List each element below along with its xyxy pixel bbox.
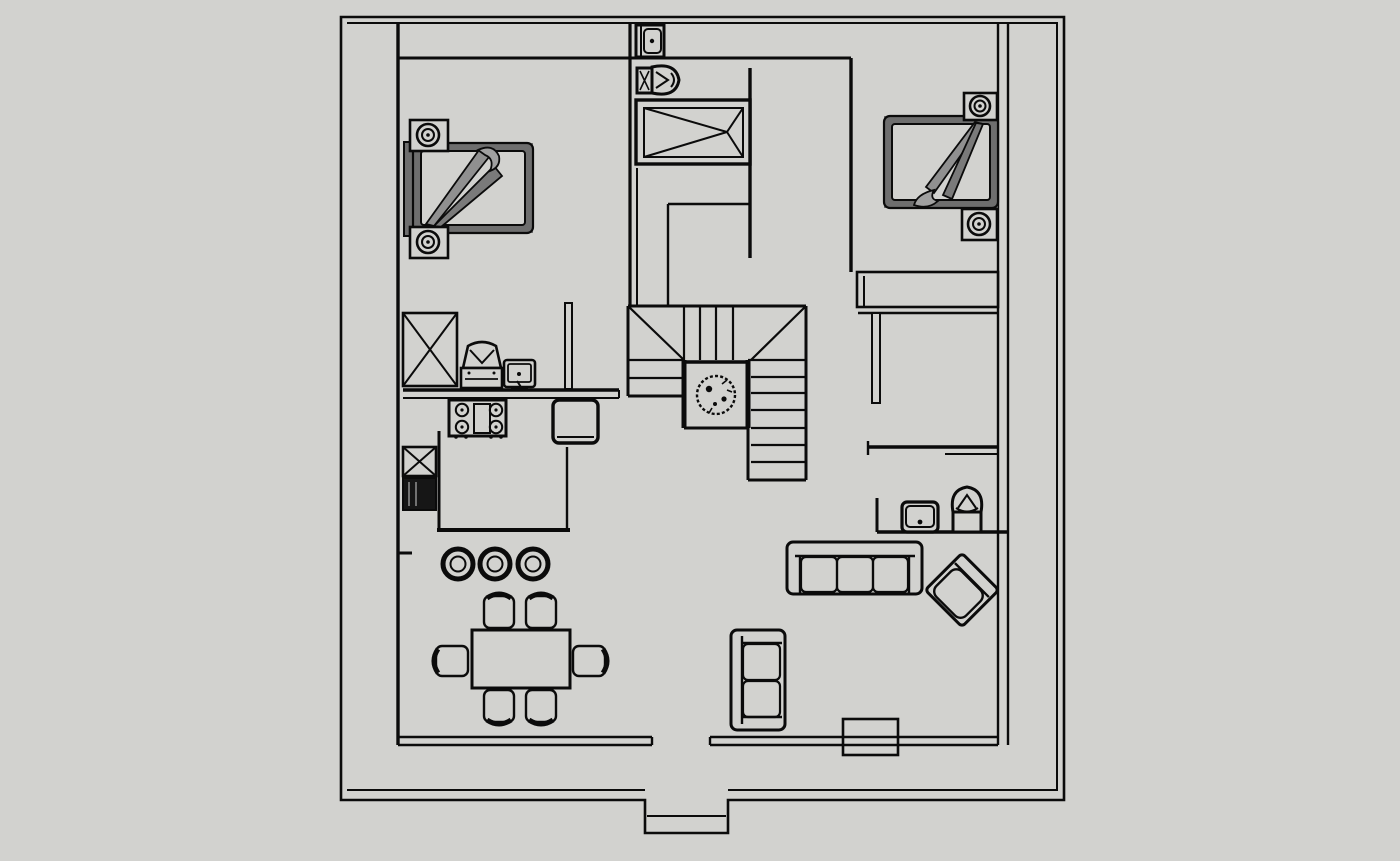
- bathroom-sink[interactable]: [636, 25, 664, 57]
- bar-stool[interactable]: [443, 549, 473, 579]
- wardrobe[interactable]: [857, 272, 998, 307]
- bed-left[interactable]: [404, 142, 533, 236]
- nightstand-lamp[interactable]: [964, 93, 997, 120]
- refrigerator[interactable]: [403, 447, 436, 510]
- sofa-three-seat[interactable]: [787, 542, 922, 594]
- dining-chair[interactable]: [484, 690, 514, 724]
- coffee-machine[interactable]: [461, 342, 502, 388]
- dining-chair[interactable]: [573, 646, 607, 676]
- kitchen-counter[interactable]: [403, 390, 619, 398]
- dining-chair[interactable]: [484, 594, 514, 628]
- dining-table[interactable]: [472, 630, 570, 688]
- bar-stool[interactable]: [518, 549, 548, 579]
- toilet[interactable]: [637, 66, 679, 94]
- nightstand-lamp[interactable]: [410, 227, 448, 258]
- stove[interactable]: [449, 400, 506, 439]
- nightstand-lamp[interactable]: [410, 120, 448, 151]
- kitchen-island[interactable]: [437, 431, 570, 530]
- bed-right[interactable]: [884, 114, 998, 210]
- bar-stool[interactable]: [480, 549, 510, 579]
- powder-room-sink[interactable]: [902, 502, 938, 532]
- floor-plan-drawing: [0, 0, 1400, 861]
- nightstand-lamp[interactable]: [962, 209, 997, 240]
- dining-chair[interactable]: [526, 690, 556, 724]
- dining-chair[interactable]: [434, 646, 468, 676]
- landing-plant[interactable]: [697, 376, 735, 414]
- dining-chair[interactable]: [526, 594, 556, 628]
- tall-cabinet[interactable]: [403, 313, 457, 386]
- accent-armchair[interactable]: [925, 553, 999, 627]
- kitchen-sink-cabinet[interactable]: [553, 400, 598, 443]
- staircase: [628, 306, 806, 480]
- countertop-tv[interactable]: [504, 360, 535, 388]
- bathtub[interactable]: [636, 100, 750, 164]
- loveseat[interactable]: [731, 630, 785, 730]
- floor-plan-canvas[interactable]: [0, 0, 1400, 861]
- toilet[interactable]: [952, 487, 981, 532]
